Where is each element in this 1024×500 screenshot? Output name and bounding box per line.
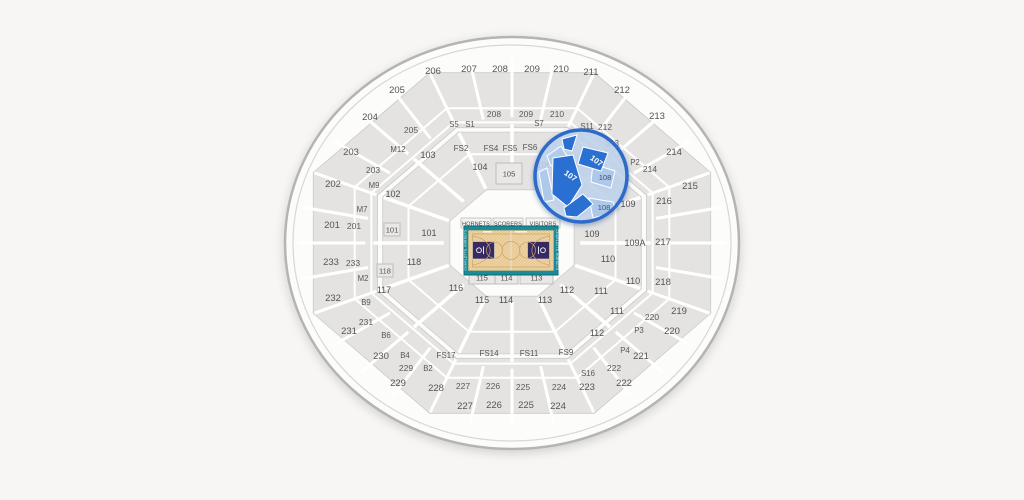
section-label-111[interactable]: 111 <box>594 286 608 296</box>
section-label-210-2[interactable]: 210 <box>550 109 564 119</box>
section-label-212-2[interactable]: 212 <box>598 122 612 132</box>
section-label-224[interactable]: 224 <box>550 401 566 412</box>
section-label-227[interactable]: 227 <box>457 401 473 412</box>
section-label-204[interactable]: 204 <box>362 112 378 123</box>
section-label-211[interactable]: 211 <box>583 67 598 78</box>
section-label-203[interactable]: 203 <box>343 147 359 158</box>
selected-section-magnifier[interactable]: 107107108108 <box>535 130 627 222</box>
section-label-227-2[interactable]: 227 <box>456 381 470 391</box>
section-label-114[interactable]: 114 <box>499 295 513 305</box>
section-label-fs11[interactable]: FS11 <box>520 349 539 358</box>
section-label-233[interactable]: 233 <box>323 257 339 268</box>
section-label-115[interactable]: 115 <box>475 295 489 305</box>
section-label-222-2[interactable]: 222 <box>607 363 621 373</box>
floor-box-118[interactable]: 118 <box>377 264 393 277</box>
section-label-233-2[interactable]: 233 <box>346 258 360 268</box>
section-label-103[interactable]: 103 <box>420 150 435 160</box>
magnifier-108-label-b: 108 <box>598 203 611 212</box>
section-label-208-2[interactable]: 208 <box>487 109 501 119</box>
section-label-226[interactable]: 226 <box>486 400 502 411</box>
section-label-b9[interactable]: B9 <box>361 298 371 307</box>
section-label-117[interactable]: 117 <box>377 285 391 295</box>
section-label-214-2[interactable]: 214 <box>643 164 657 174</box>
section-label-222[interactable]: 222 <box>616 378 632 389</box>
section-label-225[interactable]: 225 <box>518 400 534 411</box>
section-label-207[interactable]: 207 <box>461 64 477 75</box>
section-label-214[interactable]: 214 <box>666 147 682 158</box>
section-label-223[interactable]: 223 <box>579 382 595 393</box>
section-label-102[interactable]: 102 <box>385 189 400 199</box>
section-label-s7[interactable]: S7 <box>534 119 544 128</box>
seatmap-canvas[interactable]: 101118105115114113HORNETSSCORERSVISITORS… <box>0 0 1024 500</box>
section-label-206[interactable]: 206 <box>425 66 441 77</box>
svg-text:118: 118 <box>379 266 391 275</box>
section-label-109[interactable]: 109 <box>620 199 635 209</box>
section-label-225-2[interactable]: 225 <box>516 382 530 392</box>
section-label-109a[interactable]: 109A <box>624 238 645 248</box>
section-label-p2[interactable]: P2 <box>630 158 640 167</box>
section-label-118[interactable]: 118 <box>407 257 421 267</box>
section-label-208[interactable]: 208 <box>492 64 508 75</box>
section-label-205-2[interactable]: 205 <box>404 125 418 135</box>
section-label-113[interactable]: 113 <box>538 295 552 305</box>
section-label-228[interactable]: 228 <box>428 383 444 394</box>
section-label-203-2[interactable]: 203 <box>366 165 380 175</box>
section-label-m2[interactable]: M2 <box>358 274 369 283</box>
magnifier-108-label-a: 108 <box>599 173 612 182</box>
section-label-210[interactable]: 210 <box>553 64 569 75</box>
section-label-112[interactable]: 112 <box>560 285 574 295</box>
section-label-209[interactable]: 209 <box>524 64 540 75</box>
section-label-p3[interactable]: P3 <box>634 326 644 335</box>
section-label-230[interactable]: 230 <box>373 351 389 362</box>
section-label-fs6[interactable]: FS6 <box>523 143 538 152</box>
section-label-s5[interactable]: S5 <box>449 120 459 129</box>
section-label-216[interactable]: 216 <box>656 196 672 207</box>
section-label-fs4[interactable]: FS4 <box>484 144 499 153</box>
section-label-224-2[interactable]: 224 <box>552 382 566 392</box>
section-label-205[interactable]: 205 <box>389 85 405 96</box>
section-label-218[interactable]: 218 <box>655 277 671 288</box>
section-label-220-2[interactable]: 220 <box>645 312 659 322</box>
section-label-111-2[interactable]: 111 <box>610 306 624 316</box>
section-label-201-2[interactable]: 201 <box>347 221 361 231</box>
section-label-110[interactable]: 110 <box>601 254 615 264</box>
section-label-m9[interactable]: M9 <box>369 181 380 190</box>
section-label-229[interactable]: 229 <box>390 378 406 389</box>
section-label-b6[interactable]: B6 <box>381 331 391 340</box>
basketball-court: CHARLOTTE HORNETSCHARLOTTE HORNETS <box>464 226 559 275</box>
section-label-m7[interactable]: M7 <box>357 205 368 214</box>
section-label-m12[interactable]: M12 <box>390 145 405 154</box>
section-label-101[interactable]: 101 <box>421 228 436 238</box>
court-side-text-right: CHARLOTTE HORNETS <box>555 230 559 271</box>
section-label-b2[interactable]: B2 <box>423 364 433 373</box>
section-label-202[interactable]: 202 <box>325 179 341 190</box>
section-label-b4[interactable]: B4 <box>400 351 410 360</box>
section-label-229-2[interactable]: 229 <box>399 363 413 373</box>
section-label-217[interactable]: 217 <box>655 237 671 248</box>
section-label-231-2[interactable]: 231 <box>359 317 373 327</box>
section-label-116[interactable]: 116 <box>449 283 463 293</box>
section-label-p4[interactable]: P4 <box>620 346 630 355</box>
section-label-215[interactable]: 215 <box>682 181 698 192</box>
section-label-231[interactable]: 231 <box>341 326 357 337</box>
section-label-fs14[interactable]: FS14 <box>479 349 499 358</box>
section-label-fs2[interactable]: FS2 <box>454 144 469 153</box>
section-label-212[interactable]: 212 <box>614 85 630 96</box>
section-label-s16[interactable]: S16 <box>581 369 595 378</box>
floor-box-105[interactable]: 105 <box>496 163 522 184</box>
section-label-s1[interactable]: S1 <box>465 120 475 129</box>
section-label-112-2[interactable]: 112 <box>590 328 604 338</box>
section-label-220[interactable]: 220 <box>664 326 680 337</box>
section-label-201[interactable]: 201 <box>324 220 340 231</box>
section-label-fs9[interactable]: FS9 <box>559 348 574 357</box>
section-label-104[interactable]: 104 <box>472 162 487 172</box>
section-label-110-2[interactable]: 110 <box>626 276 640 286</box>
svg-text:101: 101 <box>386 225 399 234</box>
section-label-fs5[interactable]: FS5 <box>503 144 518 153</box>
section-label-226-2[interactable]: 226 <box>486 381 500 391</box>
section-label-219[interactable]: 219 <box>671 306 687 317</box>
section-label-209-2[interactable]: 209 <box>519 109 533 119</box>
section-label-109-2[interactable]: 109 <box>584 229 599 239</box>
court-side-text-left: CHARLOTTE HORNETS <box>464 230 468 271</box>
svg-text:105: 105 <box>503 169 516 178</box>
section-label-221[interactable]: 221 <box>633 351 649 362</box>
floor-box-101[interactable]: 101 <box>384 223 400 236</box>
section-label-fs17[interactable]: FS17 <box>436 351 456 360</box>
section-label-232[interactable]: 232 <box>325 293 341 304</box>
section-label-213[interactable]: 213 <box>649 111 665 122</box>
